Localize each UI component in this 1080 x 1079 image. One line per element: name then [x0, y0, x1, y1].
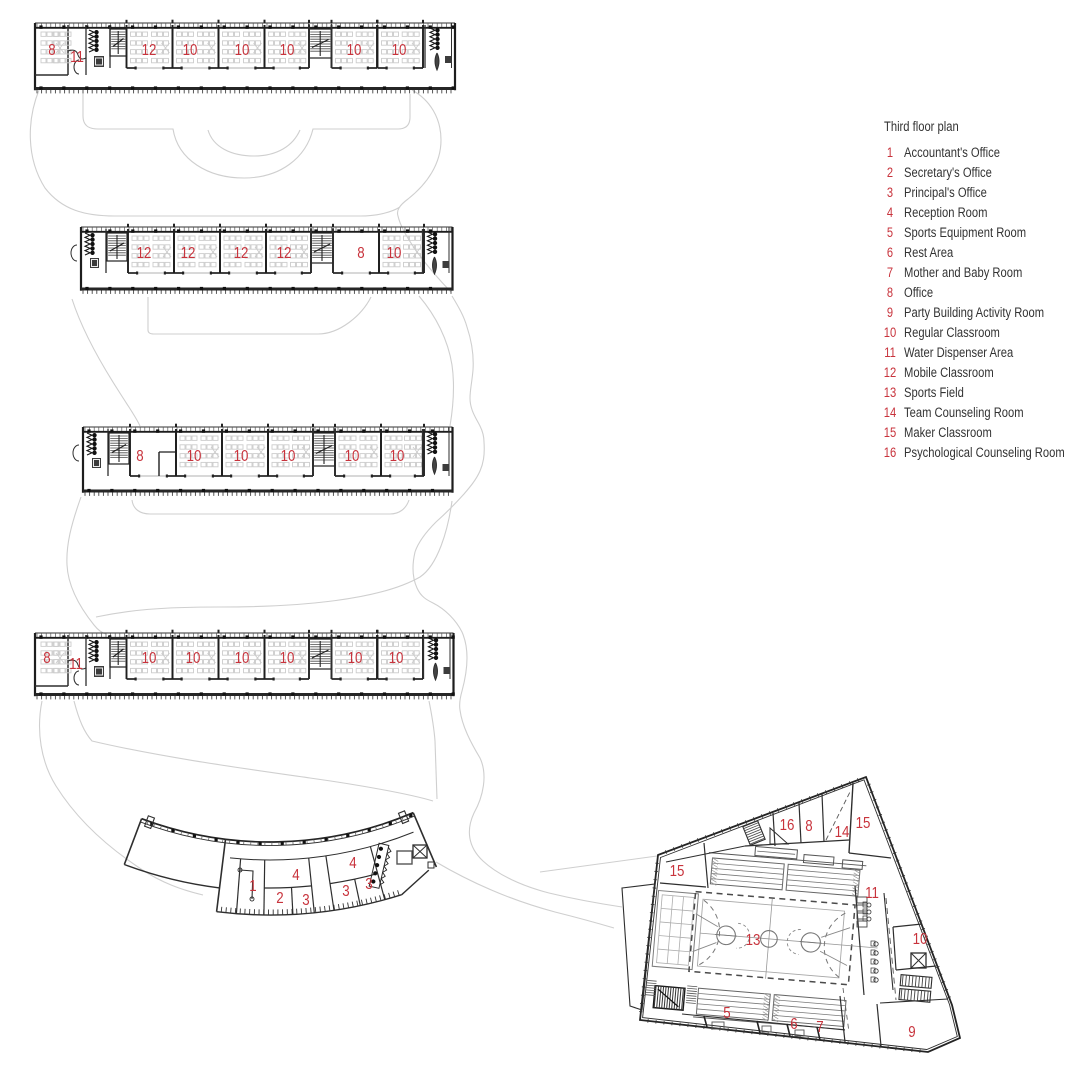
svg-text:Sports Field: Sports Field [904, 385, 964, 400]
svg-text:Third floor plan: Third floor plan [884, 119, 959, 134]
svg-text:10: 10 [347, 42, 362, 59]
svg-text:10: 10 [884, 325, 897, 340]
svg-text:10: 10 [913, 931, 928, 948]
svg-text:6: 6 [790, 1016, 797, 1033]
svg-text:8: 8 [357, 245, 364, 262]
svg-text:Water Dispenser Area: Water Dispenser Area [904, 345, 1014, 360]
svg-text:8: 8 [136, 448, 143, 465]
svg-text:10: 10 [345, 448, 360, 465]
svg-text:15: 15 [670, 863, 685, 880]
svg-text:4: 4 [887, 205, 894, 220]
svg-text:10: 10 [142, 650, 157, 667]
svg-text:Regular Classroom: Regular Classroom [904, 325, 1000, 340]
svg-text:3: 3 [342, 883, 349, 900]
svg-text:8: 8 [43, 650, 50, 667]
svg-text:10: 10 [234, 448, 249, 465]
svg-text:10: 10 [183, 42, 198, 59]
svg-text:Mobile Classroom: Mobile Classroom [904, 365, 994, 380]
svg-text:Party Building Activity Room: Party Building Activity Room [904, 305, 1044, 320]
svg-text:10: 10 [389, 650, 404, 667]
svg-text:Maker Classroom: Maker Classroom [904, 425, 992, 440]
svg-text:10: 10 [186, 650, 201, 667]
svg-text:15: 15 [884, 425, 897, 440]
svg-text:1: 1 [249, 878, 256, 895]
svg-text:10: 10 [235, 650, 250, 667]
svg-text:4: 4 [349, 855, 356, 872]
svg-text:12: 12 [277, 245, 292, 262]
svg-text:Psychological Counseling Room: Psychological Counseling Room [904, 445, 1065, 460]
svg-text:2: 2 [887, 165, 893, 180]
svg-text:Office: Office [904, 285, 933, 300]
svg-text:Mother and Baby Room: Mother and Baby Room [904, 265, 1022, 280]
svg-text:16: 16 [884, 445, 897, 460]
svg-text:3: 3 [365, 876, 372, 893]
svg-text:12: 12 [234, 245, 249, 262]
svg-text:Sports Equipment Room: Sports Equipment Room [904, 225, 1026, 240]
svg-text:13: 13 [884, 385, 897, 400]
svg-text:7: 7 [816, 1019, 823, 1036]
svg-text:10: 10 [280, 650, 295, 667]
svg-text:1: 1 [887, 145, 893, 160]
svg-text:3: 3 [302, 892, 309, 909]
svg-text:12: 12 [181, 245, 196, 262]
svg-text:8: 8 [48, 42, 55, 59]
svg-text:Accountant's Office: Accountant's Office [904, 145, 1000, 160]
svg-text:12: 12 [142, 42, 157, 59]
svg-text:Principal's Office: Principal's Office [904, 185, 987, 200]
svg-text:4: 4 [292, 867, 299, 884]
svg-text:13: 13 [746, 932, 761, 949]
svg-text:10: 10 [392, 42, 407, 59]
svg-text:3: 3 [887, 185, 893, 200]
svg-text:Secretary's Office: Secretary's Office [904, 165, 992, 180]
svg-text:10: 10 [390, 448, 405, 465]
svg-text:10: 10 [235, 42, 250, 59]
svg-text:11: 11 [884, 345, 896, 360]
svg-text:5: 5 [887, 225, 893, 240]
svg-text:9: 9 [887, 305, 893, 320]
svg-text:14: 14 [835, 824, 850, 841]
svg-text:12: 12 [884, 365, 897, 380]
svg-text:10: 10 [281, 448, 296, 465]
svg-text:10: 10 [187, 448, 202, 465]
svg-text:10: 10 [348, 650, 363, 667]
svg-text:6: 6 [887, 245, 893, 260]
svg-text:14: 14 [884, 405, 897, 420]
svg-text:7: 7 [887, 265, 893, 280]
svg-text:Reception Room: Reception Room [904, 205, 988, 220]
svg-text:9: 9 [908, 1024, 915, 1041]
svg-text:11: 11 [69, 656, 83, 673]
svg-text:8: 8 [805, 818, 812, 835]
svg-text:8: 8 [887, 285, 893, 300]
svg-text:12: 12 [137, 245, 152, 262]
svg-text:Team Counseling Room: Team Counseling Room [904, 405, 1024, 420]
svg-text:10: 10 [387, 245, 402, 262]
svg-text:2: 2 [276, 890, 283, 907]
svg-text:11: 11 [70, 49, 84, 66]
svg-text:15: 15 [856, 815, 871, 832]
svg-text:10: 10 [280, 42, 295, 59]
svg-text:16: 16 [780, 817, 795, 834]
svg-text:Rest Area: Rest Area [904, 245, 954, 260]
svg-text:5: 5 [723, 1005, 730, 1022]
svg-text:11: 11 [865, 885, 879, 902]
